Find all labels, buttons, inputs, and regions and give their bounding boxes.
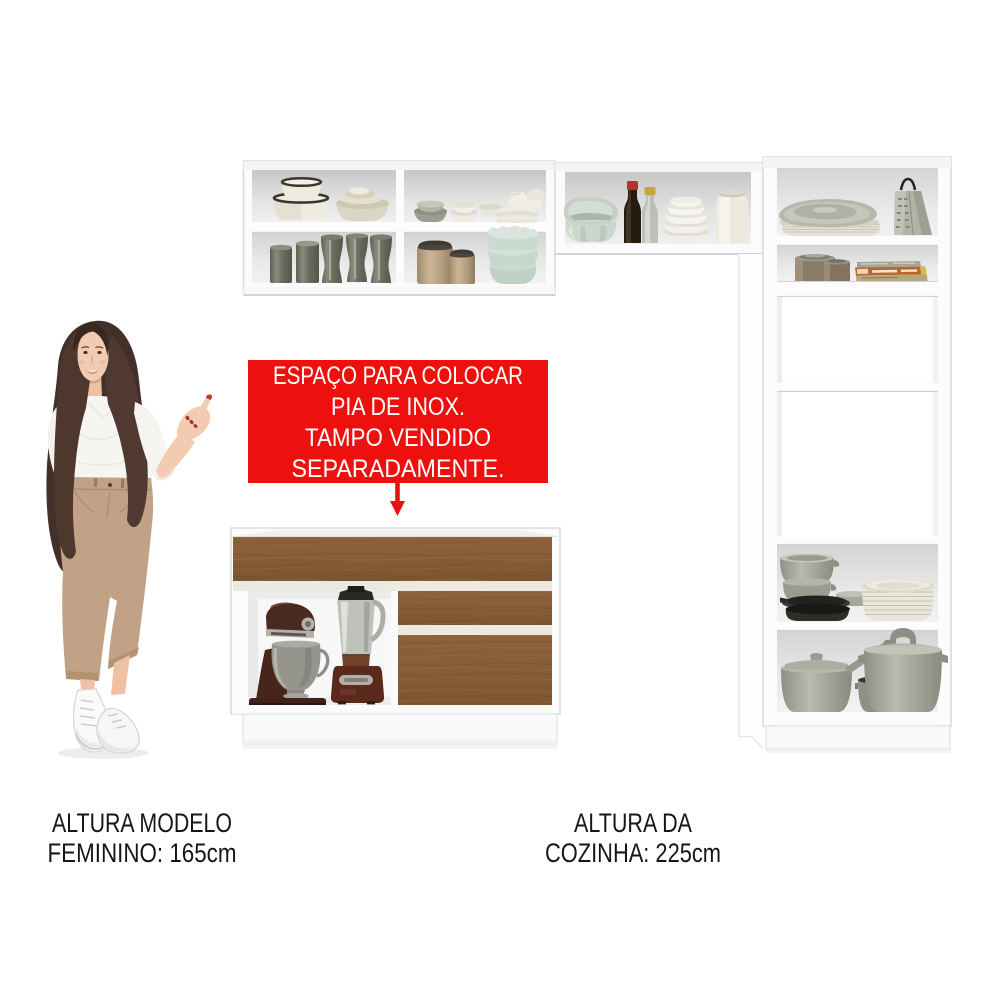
svg-text:ALTURA MODELO: ALTURA MODELO	[52, 808, 232, 838]
svg-text:SEPARADAMENTE.: SEPARADAMENTE.	[292, 455, 505, 483]
svg-text:FEMININO: 165cm: FEMININO: 165cm	[48, 838, 237, 868]
svg-text:TAMPO VENDIDO: TAMPO VENDIDO	[305, 424, 491, 452]
svg-text:ALTURA DA: ALTURA DA	[574, 808, 692, 838]
svg-text:ESPAÇO PARA COLOCAR: ESPAÇO PARA COLOCAR	[273, 362, 523, 390]
svg-text:COZINHA: 225cm: COZINHA: 225cm	[545, 838, 721, 868]
svg-text:PIA DE INOX.: PIA DE INOX.	[331, 393, 465, 421]
